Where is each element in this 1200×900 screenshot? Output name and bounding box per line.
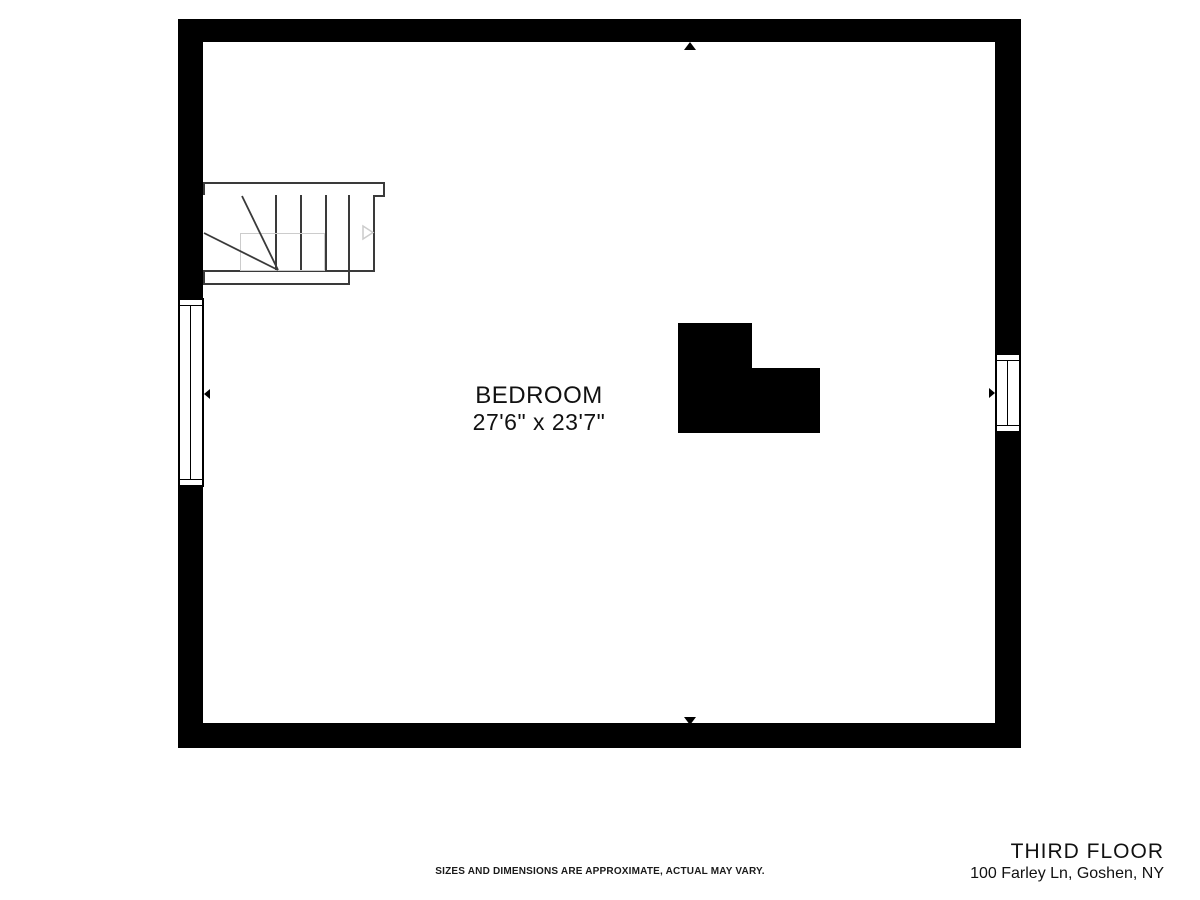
chimney-block-left (678, 323, 752, 433)
room-dimensions: 27'6" x 23'7" (389, 409, 689, 435)
stair-tread-line (325, 195, 327, 270)
wall-bottom (178, 723, 1021, 748)
chimney-block-right (750, 368, 820, 433)
room-label: BEDROOM 27'6" x 23'7" (389, 383, 689, 435)
disclaimer-text: SIZES AND DIMENSIONS ARE APPROXIMATE, AC… (400, 866, 800, 877)
arrow-down-marker-icon (684, 717, 696, 725)
window-glass-line (190, 306, 191, 479)
room-name: BEDROOM (389, 383, 689, 409)
window-right (995, 353, 1021, 433)
window-glass-line (1007, 361, 1008, 425)
window-left (178, 298, 204, 487)
stair-walkline-box (240, 233, 325, 271)
title-block: THIRD FLOOR 100 Farley Ln, Goshen, NY (970, 839, 1164, 884)
floor-plan-canvas: BEDROOM 27'6" x 23'7" SIZES AND DIMENSIO… (0, 0, 1200, 900)
stair-tread-line (348, 195, 350, 270)
window-frame-line (180, 479, 202, 480)
wall-top (178, 19, 1021, 42)
address: 100 Farley Ln, Goshen, NY (970, 864, 1164, 884)
floor-title: THIRD FLOOR (970, 839, 1164, 864)
stair-lower-rail (203, 270, 350, 285)
arrow-right-marker-icon (989, 388, 995, 398)
window-frame-line (997, 425, 1019, 426)
arrow-up-marker-icon (684, 42, 696, 50)
arrow-left-marker-icon (204, 389, 210, 399)
